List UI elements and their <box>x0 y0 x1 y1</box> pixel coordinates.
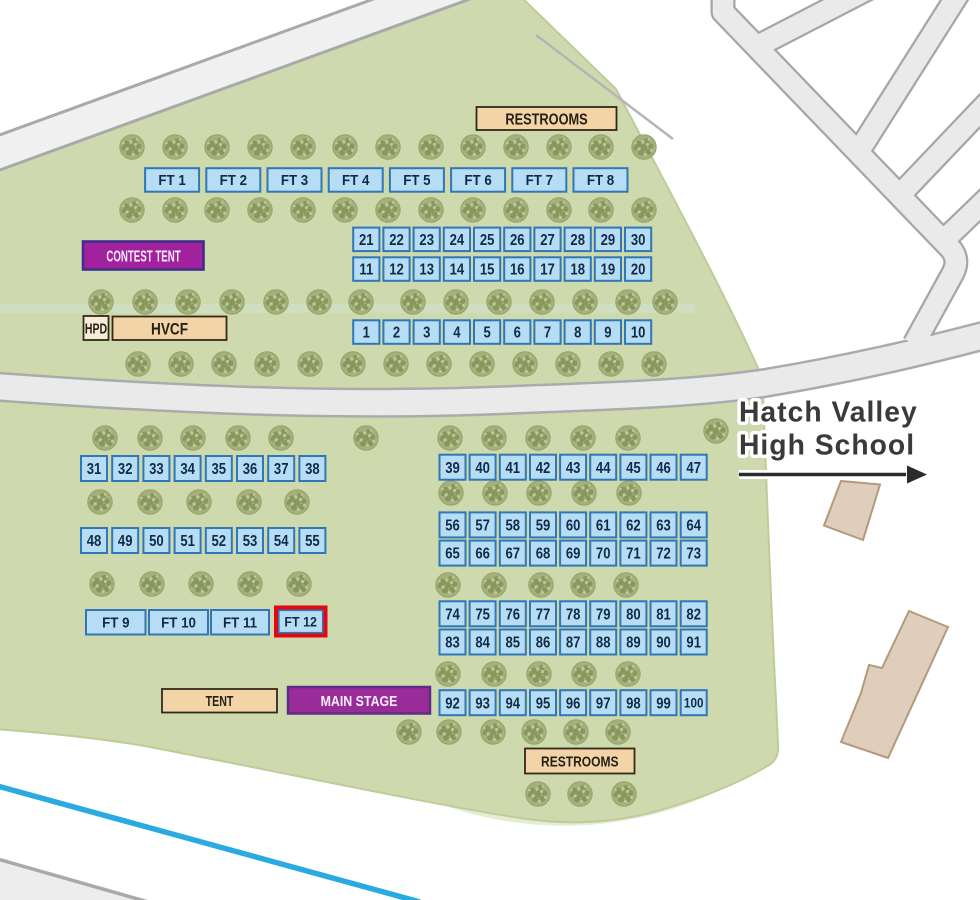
svg-text:86: 86 <box>536 635 551 652</box>
svg-text:4: 4 <box>453 325 460 342</box>
svg-text:69: 69 <box>566 546 581 563</box>
svg-text:95: 95 <box>536 695 551 712</box>
svg-text:23: 23 <box>419 232 434 249</box>
svg-text:5: 5 <box>483 325 490 342</box>
svg-text:FT 8: FT 8 <box>587 172 615 189</box>
svg-text:85: 85 <box>506 635 521 652</box>
svg-text:2: 2 <box>393 325 400 342</box>
svg-text:32: 32 <box>118 461 133 478</box>
svg-text:17: 17 <box>540 262 555 279</box>
svg-text:34: 34 <box>180 461 195 478</box>
svg-text:46: 46 <box>656 460 671 477</box>
svg-text:84: 84 <box>475 635 490 652</box>
svg-text:FT 2: FT 2 <box>220 172 248 189</box>
svg-text:96: 96 <box>566 695 581 712</box>
svg-text:19: 19 <box>601 262 616 279</box>
svg-text:49: 49 <box>118 533 133 550</box>
svg-text:30: 30 <box>631 232 646 249</box>
svg-text:24: 24 <box>450 232 465 249</box>
svg-text:CONTEST TENT: CONTEST TENT <box>106 247 180 265</box>
svg-text:91: 91 <box>686 635 701 652</box>
svg-text:MAIN STAGE: MAIN STAGE <box>321 693 398 709</box>
svg-text:60: 60 <box>566 518 581 535</box>
svg-text:94: 94 <box>506 695 521 712</box>
svg-text:99: 99 <box>656 695 671 712</box>
svg-text:16: 16 <box>510 262 525 279</box>
svg-text:56: 56 <box>445 518 460 535</box>
svg-text:79: 79 <box>596 606 611 623</box>
svg-text:FT 6: FT 6 <box>464 172 492 189</box>
svg-text:FT 5: FT 5 <box>403 172 431 189</box>
svg-text:38: 38 <box>305 461 320 478</box>
svg-text:6: 6 <box>514 325 521 342</box>
svg-text:FT 7: FT 7 <box>526 172 554 189</box>
svg-text:47: 47 <box>686 460 701 477</box>
svg-text:Hatch Valley: Hatch Valley <box>739 396 918 428</box>
svg-text:3: 3 <box>423 325 430 342</box>
svg-text:22: 22 <box>389 232 404 249</box>
svg-text:40: 40 <box>475 460 490 477</box>
svg-text:78: 78 <box>566 606 581 623</box>
svg-text:83: 83 <box>445 635 460 652</box>
svg-text:39: 39 <box>445 460 460 477</box>
svg-text:61: 61 <box>596 518 611 535</box>
svg-text:FT 4: FT 4 <box>342 172 370 189</box>
svg-text:FT 12: FT 12 <box>284 614 317 630</box>
svg-text:11: 11 <box>359 262 373 279</box>
svg-text:51: 51 <box>180 533 195 550</box>
svg-text:55: 55 <box>305 533 320 550</box>
svg-text:73: 73 <box>686 546 701 563</box>
svg-text:12: 12 <box>389 262 404 279</box>
svg-text:10: 10 <box>631 325 646 342</box>
svg-text:20: 20 <box>631 262 646 279</box>
svg-text:37: 37 <box>274 461 289 478</box>
svg-text:70: 70 <box>596 546 611 563</box>
svg-text:FT 3: FT 3 <box>281 172 309 189</box>
svg-text:72: 72 <box>656 546 671 563</box>
svg-text:High School: High School <box>739 429 915 461</box>
svg-text:1: 1 <box>363 325 370 342</box>
svg-text:48: 48 <box>87 533 102 550</box>
svg-text:88: 88 <box>596 635 611 652</box>
svg-text:80: 80 <box>626 606 641 623</box>
svg-text:9: 9 <box>604 325 611 342</box>
svg-text:57: 57 <box>475 518 490 535</box>
svg-text:63: 63 <box>656 518 671 535</box>
svg-text:65: 65 <box>445 546 460 563</box>
svg-text:50: 50 <box>149 533 164 550</box>
svg-text:75: 75 <box>475 606 490 623</box>
svg-text:27: 27 <box>540 232 555 249</box>
svg-text:RESTROOMS: RESTROOMS <box>541 753 619 769</box>
svg-text:43: 43 <box>566 460 581 477</box>
svg-text:FT 1: FT 1 <box>158 172 186 189</box>
svg-text:FT 9: FT 9 <box>102 614 130 631</box>
svg-text:FT 10: FT 10 <box>161 614 196 631</box>
svg-text:18: 18 <box>570 262 585 279</box>
svg-text:89: 89 <box>626 635 641 652</box>
svg-text:58: 58 <box>506 518 521 535</box>
svg-text:67: 67 <box>506 546 521 563</box>
svg-text:29: 29 <box>601 232 616 249</box>
svg-text:13: 13 <box>419 262 434 279</box>
svg-text:62: 62 <box>626 518 641 535</box>
svg-text:FT 11: FT 11 <box>223 614 257 631</box>
svg-text:52: 52 <box>212 533 227 550</box>
svg-text:33: 33 <box>149 461 164 478</box>
svg-text:7: 7 <box>544 325 551 342</box>
svg-text:14: 14 <box>450 262 465 279</box>
svg-text:82: 82 <box>686 606 701 623</box>
svg-text:RESTROOMS: RESTROOMS <box>505 110 587 127</box>
svg-text:98: 98 <box>626 695 641 712</box>
svg-text:41: 41 <box>506 460 521 477</box>
svg-text:71: 71 <box>626 546 641 563</box>
svg-text:66: 66 <box>475 546 490 563</box>
svg-text:76: 76 <box>506 606 521 623</box>
svg-text:90: 90 <box>656 635 671 652</box>
svg-text:74: 74 <box>445 606 460 623</box>
svg-text:53: 53 <box>243 533 258 550</box>
svg-text:59: 59 <box>536 518 551 535</box>
svg-text:8: 8 <box>574 325 581 342</box>
svg-text:68: 68 <box>536 546 551 563</box>
svg-text:45: 45 <box>626 460 641 477</box>
svg-text:64: 64 <box>686 518 701 535</box>
svg-text:42: 42 <box>536 460 551 477</box>
svg-text:77: 77 <box>536 606 551 623</box>
svg-text:81: 81 <box>656 606 671 623</box>
svg-text:35: 35 <box>212 461 227 478</box>
svg-text:100: 100 <box>684 695 704 711</box>
svg-text:25: 25 <box>480 232 495 249</box>
svg-text:15: 15 <box>480 262 495 279</box>
svg-text:TENT: TENT <box>206 692 234 709</box>
svg-text:92: 92 <box>445 695 460 712</box>
svg-text:28: 28 <box>570 232 585 249</box>
svg-text:26: 26 <box>510 232 525 249</box>
svg-text:93: 93 <box>475 695 490 712</box>
svg-text:21: 21 <box>359 232 374 249</box>
svg-text:HVCF: HVCF <box>151 320 188 339</box>
svg-text:31: 31 <box>87 461 102 478</box>
svg-text:97: 97 <box>596 695 611 712</box>
svg-text:HPD: HPD <box>85 320 107 337</box>
svg-text:54: 54 <box>274 533 289 550</box>
svg-text:36: 36 <box>243 461 258 478</box>
svg-text:87: 87 <box>566 635 581 652</box>
svg-text:44: 44 <box>596 460 611 477</box>
